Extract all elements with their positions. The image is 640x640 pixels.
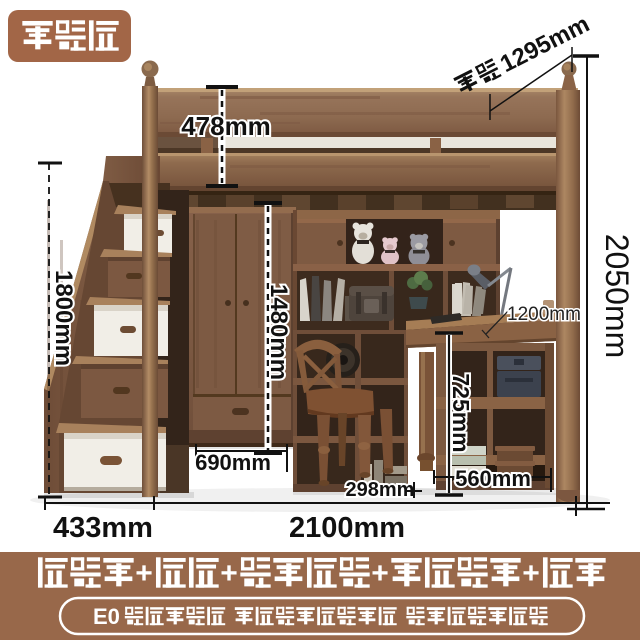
svg-text:433mm: 433mm: [53, 512, 153, 544]
svg-text:+: +: [522, 557, 540, 590]
svg-text:560mm: 560mm: [455, 466, 531, 491]
svg-text:2100mm: 2100mm: [289, 512, 405, 544]
svg-text:2050mm: 2050mm: [599, 234, 635, 359]
svg-text:1480mm: 1480mm: [265, 284, 292, 380]
svg-text:1200mm: 1200mm: [507, 304, 581, 325]
svg-text:+: +: [371, 557, 389, 590]
svg-text:+: +: [135, 557, 153, 590]
svg-text:725mm: 725mm: [448, 373, 474, 452]
svg-text:478mm: 478mm: [181, 111, 271, 141]
svg-text:298mm: 298mm: [346, 479, 415, 501]
svg-text:E0: E0: [93, 604, 120, 629]
svg-text:690mm: 690mm: [195, 450, 271, 475]
svg-text:1800mm: 1800mm: [50, 270, 77, 366]
svg-text:+: +: [220, 557, 238, 590]
